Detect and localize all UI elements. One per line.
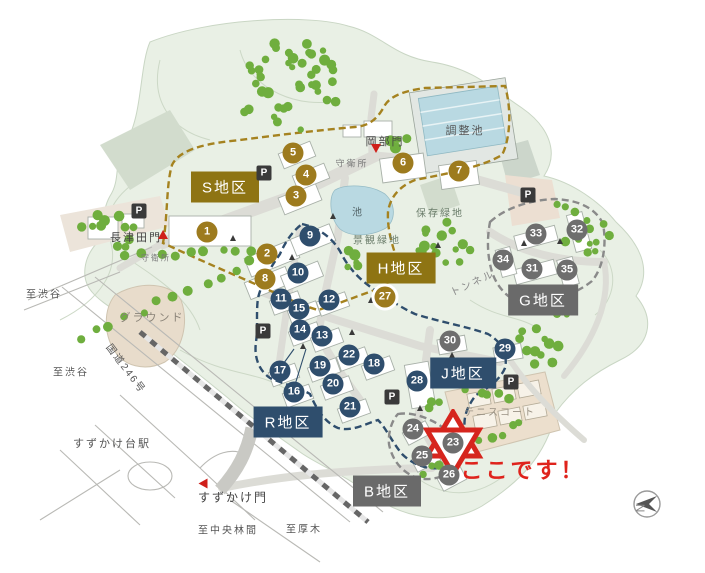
- building-marker-6[interactable]: 6: [393, 153, 414, 174]
- building-marker-35[interactable]: 35: [557, 260, 578, 281]
- building-marker-9[interactable]: 9: [300, 226, 321, 247]
- building-marker-14[interactable]: 14: [290, 320, 311, 341]
- parking-icon-2: P: [521, 188, 536, 203]
- building-marker-33[interactable]: 33: [526, 224, 547, 245]
- map-label-6: グラウンド: [120, 309, 185, 325]
- building-marker-31[interactable]: 31: [522, 259, 543, 280]
- building-marker-8[interactable]: 8: [255, 269, 276, 290]
- map-label-4: 景観緑地: [353, 232, 401, 247]
- building-marker-15[interactable]: 15: [289, 299, 310, 320]
- gate-marker-icon-長津田門: [158, 230, 168, 239]
- map-label-11: すずかけ台駅: [73, 435, 151, 451]
- map-label-13: 至厚木: [286, 521, 322, 536]
- building-marker-20[interactable]: 20: [323, 374, 344, 395]
- building-marker-25[interactable]: 25: [412, 446, 433, 467]
- building-marker-29[interactable]: 29: [495, 339, 516, 360]
- compass: N: [630, 487, 700, 527]
- gate-marker-icon-すずかけ門: [199, 479, 208, 489]
- building-marker-23[interactable]: 23: [443, 433, 464, 454]
- map-label-8: 至渋谷: [26, 286, 62, 301]
- here-callout: ここです！: [460, 453, 585, 485]
- district-label-R地区: R地区: [254, 407, 323, 438]
- building-marker-3[interactable]: 3: [286, 186, 307, 207]
- building-marker-17[interactable]: 17: [270, 361, 291, 382]
- map-label-2: 池: [352, 204, 364, 219]
- building-marker-10[interactable]: 10: [288, 263, 309, 284]
- district-label-J地区: J地区: [430, 358, 496, 389]
- building-marker-19[interactable]: 19: [310, 356, 331, 377]
- gate-label-長津田門: 長津田門: [110, 229, 162, 245]
- building-marker-26[interactable]: 26: [439, 465, 460, 486]
- compass-north-label: N: [633, 504, 647, 513]
- building-marker-32[interactable]: 32: [567, 220, 588, 241]
- map-label-1: 守衛所: [335, 157, 368, 170]
- building-marker-16[interactable]: 16: [284, 382, 305, 403]
- district-label-S地区: S地区: [191, 172, 259, 203]
- building-marker-30[interactable]: 30: [440, 331, 461, 352]
- parking-icon-1: P: [132, 204, 147, 219]
- building-marker-18[interactable]: 18: [364, 354, 385, 375]
- building-marker-21[interactable]: 21: [340, 397, 361, 418]
- parking-icon-4: P: [385, 390, 400, 405]
- building-marker-24[interactable]: 24: [403, 419, 424, 440]
- district-label-B地区: B地区: [353, 476, 421, 507]
- campus-map: 調整池守衛所池保存緑地景観緑地トンネルグラウンド守衛所至渋谷至渋谷国道246号す…: [0, 0, 705, 573]
- map-label-3: 保存緑地: [416, 205, 464, 220]
- district-label-H地区: H地区: [367, 253, 436, 284]
- building-marker-2[interactable]: 2: [257, 244, 278, 265]
- parking-icon-3: P: [256, 324, 271, 339]
- building-marker-12[interactable]: 12: [319, 290, 340, 311]
- building-marker-22[interactable]: 22: [339, 345, 360, 366]
- gate-marker-icon-岡部門: [371, 144, 381, 153]
- building-marker-28[interactable]: 28: [407, 371, 428, 392]
- map-label-9: 至渋谷: [53, 364, 89, 379]
- district-label-G地区: G地区: [508, 285, 578, 316]
- gate-label-すずかけ門: すずかけ門: [198, 489, 268, 506]
- building-marker-7[interactable]: 7: [449, 161, 470, 182]
- building-marker-5[interactable]: 5: [283, 143, 304, 164]
- building-marker-27[interactable]: 27: [375, 287, 396, 308]
- map-label-0: 調整池: [446, 122, 485, 138]
- building-marker-1[interactable]: 1: [197, 222, 218, 243]
- parking-icon-0: P: [257, 166, 272, 181]
- building-marker-34[interactable]: 34: [493, 250, 514, 271]
- map-label-12: 至中央林間: [198, 522, 258, 537]
- parking-icon-5: P: [504, 375, 519, 390]
- map-label-7: 守衛所: [141, 253, 171, 264]
- building-marker-4[interactable]: 4: [296, 165, 317, 186]
- building-marker-13[interactable]: 13: [312, 326, 333, 347]
